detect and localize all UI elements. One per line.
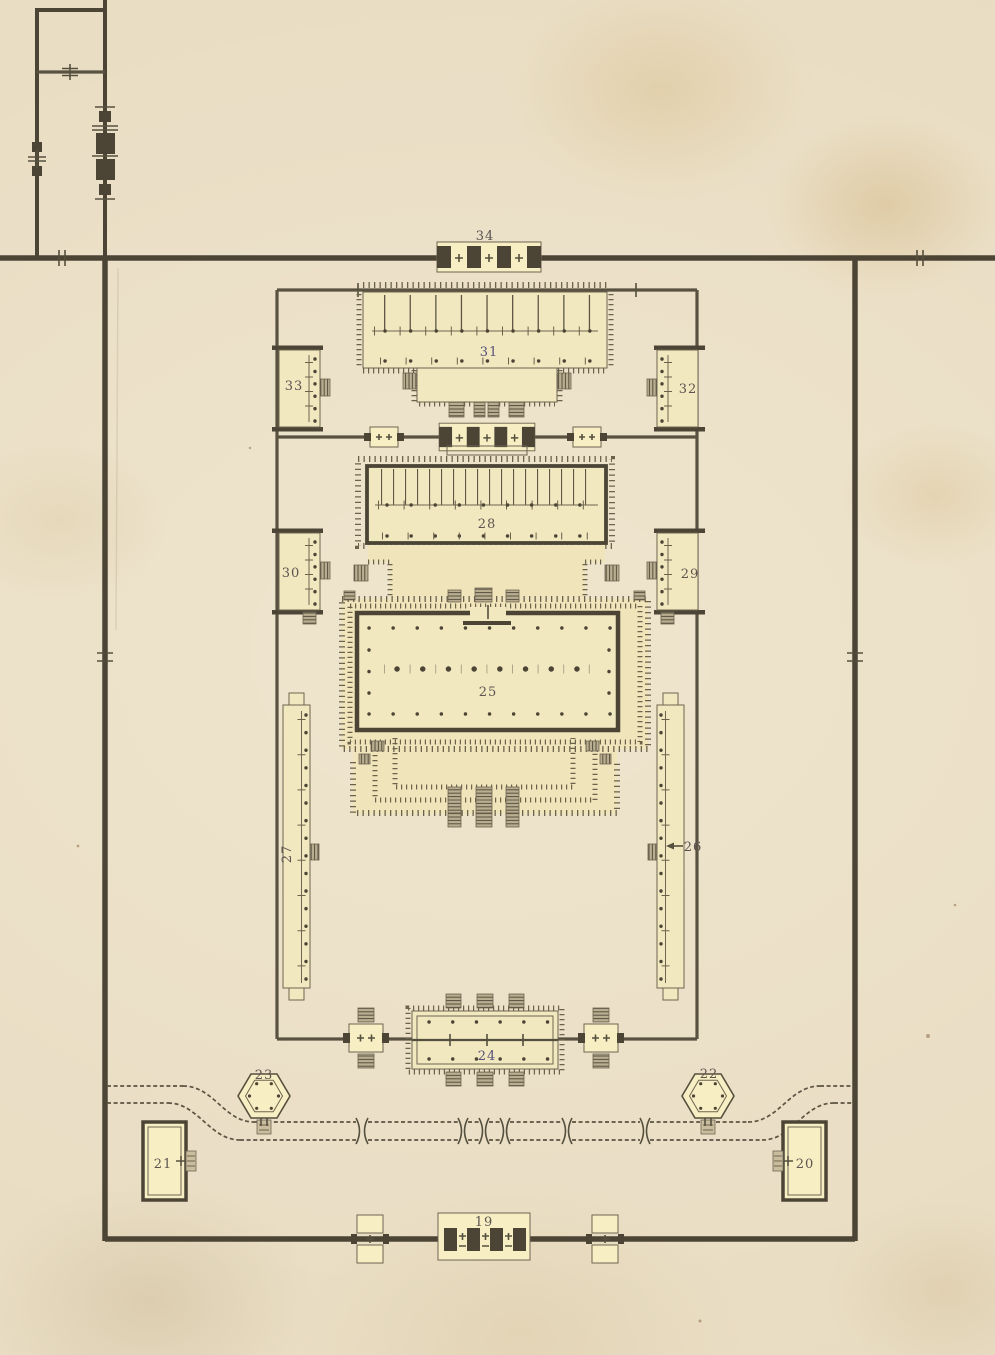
pavilion-23-landing <box>257 1120 271 1134</box>
gate-west-of-24 <box>343 1008 389 1068</box>
paper-crease <box>116 268 118 630</box>
approach-path <box>107 1086 853 1144</box>
plan-drawing: 34 31 33 32 <box>0 0 995 1355</box>
hall-31-terrace <box>417 368 557 402</box>
label-20: 20 <box>796 1157 815 1172</box>
gate-east-of-24 <box>578 1008 624 1068</box>
pavilion-22-landing <box>701 1120 715 1134</box>
label-19: 19 <box>475 1215 494 1230</box>
hall-25 <box>357 605 618 730</box>
divider-gates <box>364 423 607 455</box>
label-25: 25 <box>479 685 498 700</box>
hall-28-terrace <box>368 545 605 562</box>
label-31: 31 <box>480 345 499 360</box>
label-24: 24 <box>478 1049 497 1064</box>
platform-25 <box>342 588 648 827</box>
label-27: 27 <box>280 845 295 864</box>
gate-southeast-small <box>586 1215 624 1263</box>
pavilion-30 <box>272 529 330 625</box>
gate-southwest-small <box>351 1215 389 1263</box>
label-33: 33 <box>285 379 304 394</box>
label-34: 34 <box>476 229 495 244</box>
scanned-plan-page: 34 31 33 32 <box>0 0 995 1355</box>
label-21: 21 <box>154 1157 173 1172</box>
annex-east-wall-gates <box>92 107 118 199</box>
label-26: 26 <box>684 840 703 855</box>
hall-24 <box>408 994 562 1086</box>
label-29: 29 <box>681 567 700 582</box>
label-23: 23 <box>255 1068 274 1083</box>
annex-enclosure <box>28 0 118 258</box>
label-22: 22 <box>700 1067 719 1082</box>
gate-34 <box>437 242 541 272</box>
annex-west-wall-gate <box>28 142 46 176</box>
label-30: 30 <box>282 566 301 581</box>
label-28: 28 <box>478 517 497 532</box>
label-32: 32 <box>679 382 698 397</box>
